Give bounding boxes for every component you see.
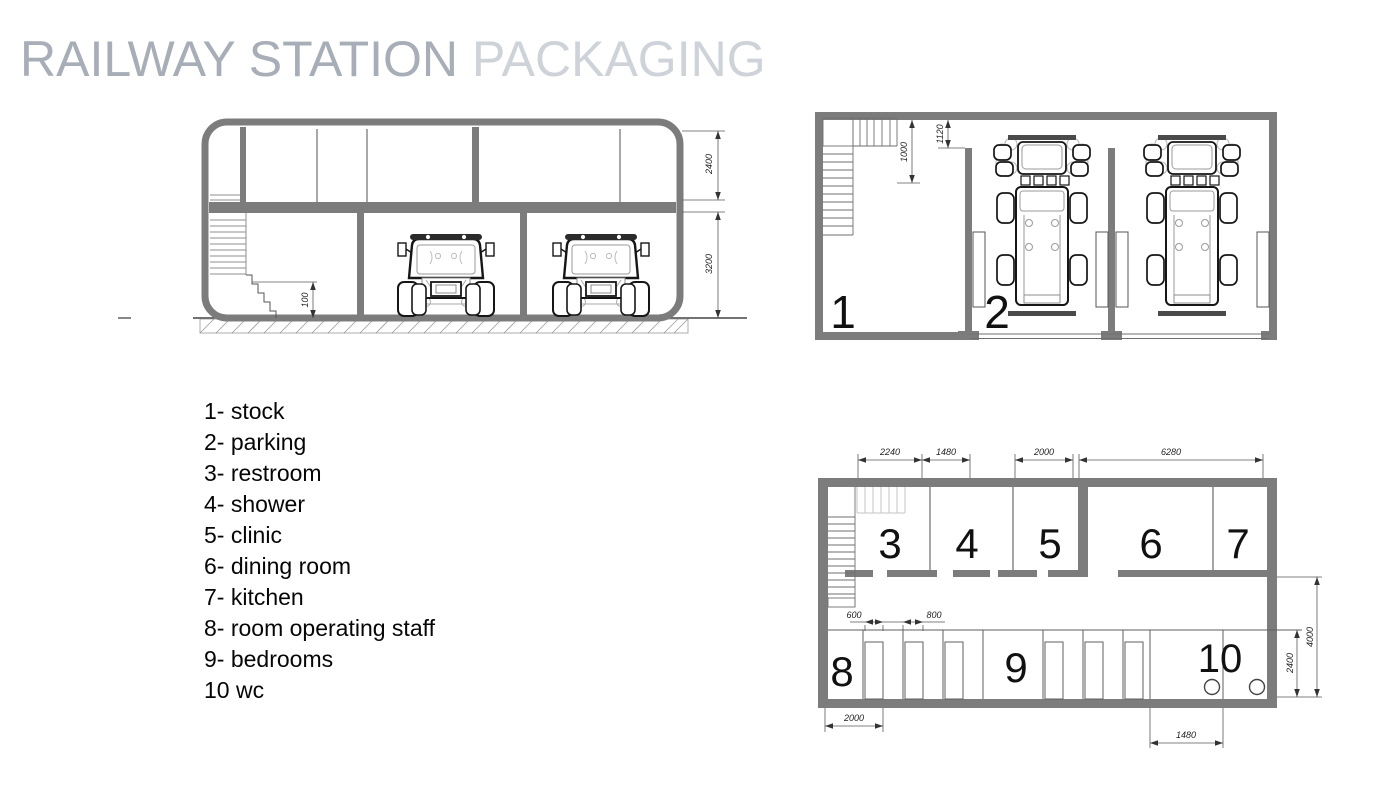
slide: RAILWAY STATIONPACKAGING 1- stock 2- par… (0, 0, 1400, 788)
dim-top-restroom-label: 2240 (879, 447, 900, 457)
legend-item-parking: 2- parking (204, 427, 435, 458)
dim-bed-width-label: 600 (846, 610, 861, 620)
room-label-shower: 4 (955, 520, 978, 567)
room-label-restroom: 3 (878, 520, 901, 567)
room-label-stock: 1 (830, 286, 856, 338)
bed-cubicles (863, 630, 1223, 699)
dim-stair: 1000 (897, 120, 920, 183)
legend-item-shower: 4- shower (204, 489, 435, 520)
room-label-dining: 6 (1139, 520, 1162, 567)
stairs-plan (823, 118, 897, 235)
room-label-staff: 8 (830, 648, 853, 695)
room-label-parking: 2 (984, 286, 1010, 338)
legend-item-dining-room: 6- dining room (204, 551, 435, 582)
truck-front-1 (398, 234, 494, 316)
dim-bed-gap-label: 800 (926, 610, 941, 620)
section-drawing: 100 2400 3200 (115, 100, 765, 345)
legend-item-wc: 10 wc (204, 675, 435, 706)
dim-upper-height-label: 2400 (704, 154, 714, 175)
legend-item-clinic: 5- clinic (204, 520, 435, 551)
truck-top-2 (1144, 135, 1240, 316)
dim-top-clinic-label: 2000 (1033, 447, 1054, 457)
legend-item-stock: 1- stock (204, 396, 435, 427)
dims-bottom (825, 708, 1223, 748)
truck-front-2 (553, 234, 649, 316)
dim-entry: 1120 (935, 120, 965, 148)
toilet-icon (1250, 680, 1265, 695)
room-label-wc: 10 (1198, 637, 1243, 681)
stairs-upper-flight (857, 487, 905, 513)
legend-item-kitchen: 7- kitchen (204, 582, 435, 613)
room-label-kitchen: 7 (1226, 520, 1249, 567)
dim-top-shower-label: 1480 (936, 447, 956, 457)
title-secondary: PACKAGING (472, 31, 766, 87)
room-label-bedrooms: 9 (1004, 644, 1027, 691)
parking-floor-plan: 1000 1120 1 2 (810, 100, 1290, 350)
dim-row-depth-label: 2400 (1285, 653, 1295, 674)
dims-right (1277, 577, 1322, 697)
toilet-icon (1205, 680, 1220, 695)
dim-wing-depth-label: 4000 (1305, 627, 1315, 647)
floor-slab (209, 202, 676, 213)
legend-item-operating-staff: 8- room operating staff (204, 613, 435, 644)
rooms-floor-plan: 2240 1480 2000 6280 600 800 2000 1480 24… (810, 440, 1330, 770)
legend-item-bedrooms: 9- bedrooms (204, 644, 435, 675)
dim-plinth: 100 (252, 282, 317, 318)
dim-heights: 2400 3200 (682, 131, 725, 318)
dim-lower-height-label: 3200 (704, 254, 714, 274)
wc-fixtures (1205, 680, 1265, 695)
dim-stair-label: 1000 (899, 142, 909, 162)
dim-top-dining-label: 6280 (1161, 447, 1181, 457)
legend-item-restroom: 3- restroom (204, 458, 435, 489)
dim-bottom-right-label: 1480 (1176, 730, 1196, 740)
room-label-clinic: 5 (1038, 520, 1061, 567)
room-legend: 1- stock 2- parking 3- restroom 4- showe… (204, 396, 435, 706)
dim-plinth-label: 100 (300, 292, 310, 307)
dim-entry-label: 1120 (935, 124, 945, 143)
dim-bottom-left-label: 2000 (843, 713, 864, 723)
dims-top (858, 454, 1263, 478)
stairs-plan (828, 487, 855, 607)
title-primary: RAILWAY STATION (20, 31, 458, 87)
stairs-section (210, 195, 276, 318)
page-title: RAILWAY STATIONPACKAGING (20, 30, 766, 88)
